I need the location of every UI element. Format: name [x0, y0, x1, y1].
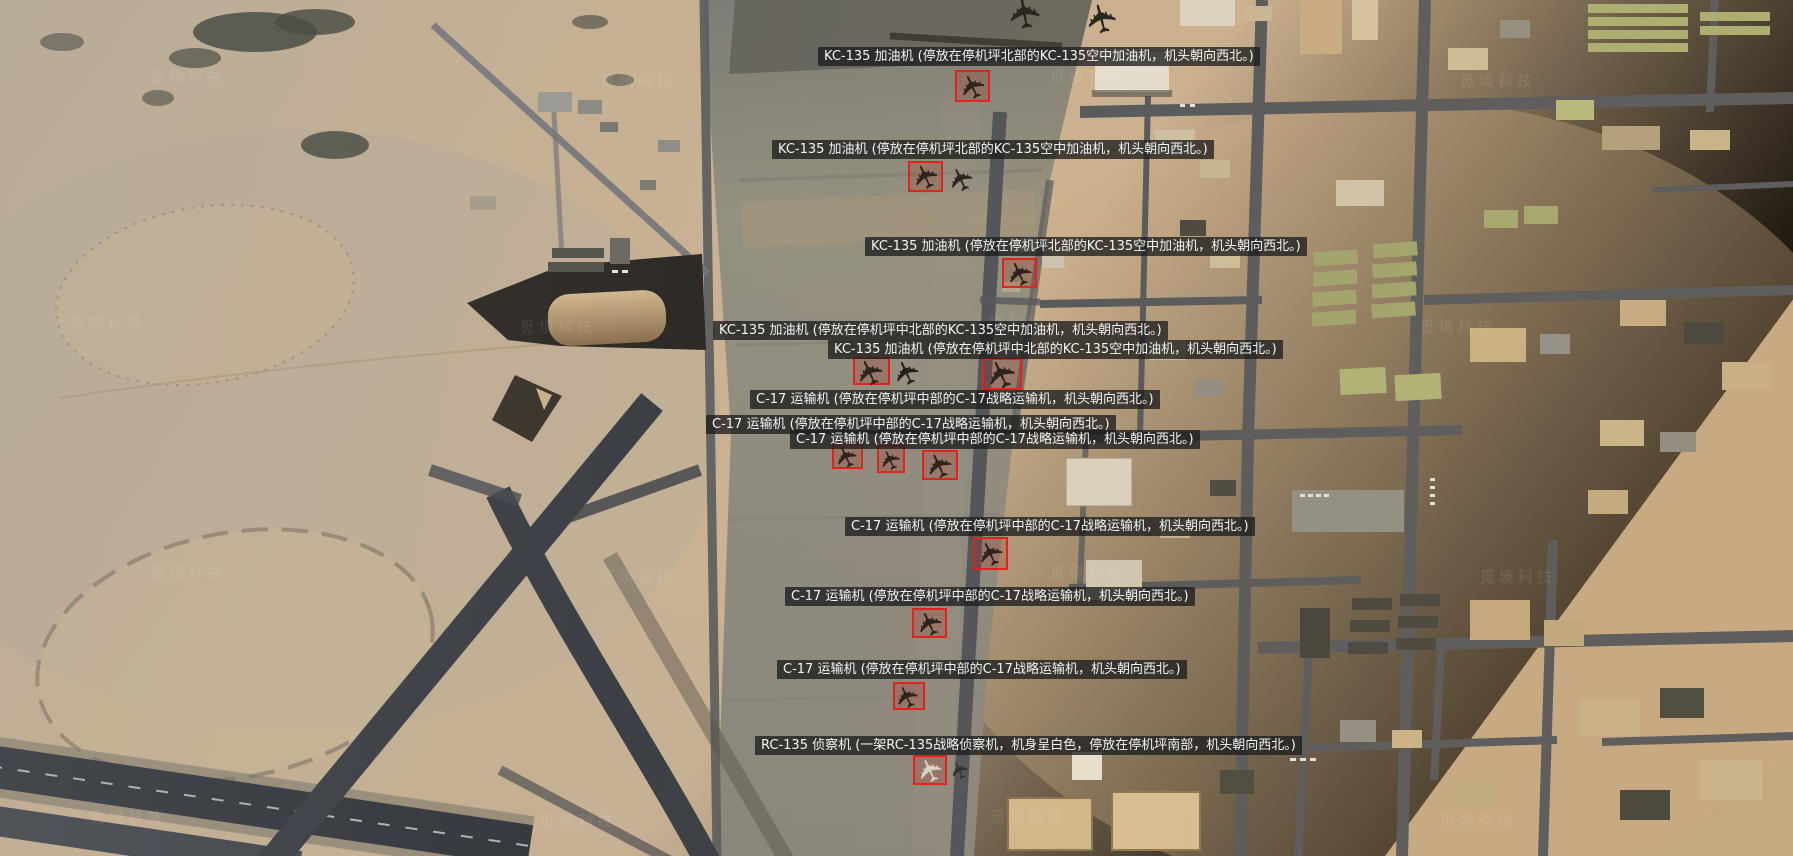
detection-box: ✈	[877, 445, 905, 473]
aircraft-icon: ✈	[999, 253, 1041, 292]
detection-box: ✈	[893, 682, 925, 710]
annotation-label: C-17 运输机 (停放在停机坪中部的C-17战略运输机，机头朝向西北。)	[845, 517, 1255, 536]
detection-box: ✈	[1002, 258, 1037, 288]
annotation-label: C-17 运输机 (停放在停机坪中部的C-17战略运输机，机头朝向西北。)	[785, 587, 1195, 606]
aircraft-icon: ✈	[919, 445, 962, 485]
watermark-text: 觅境科技	[1440, 810, 1516, 831]
watermark-text: 觅境科技	[540, 810, 616, 831]
detection-box: ✈	[955, 70, 990, 102]
watermark-text: 觅境科技	[1420, 316, 1496, 337]
aircraft-icon: ✈	[890, 678, 928, 713]
aircraft-icon: ✈	[952, 66, 994, 105]
aircraft-icon: ✈	[945, 756, 975, 784]
aircraft-icon: ✈	[909, 603, 951, 642]
detection-box: ✈	[922, 450, 958, 480]
watermark-text: 觅境科技	[1460, 70, 1536, 91]
satellite-annotation-view: 觅境科技觅境科技觅境科技觅境科技觅境科技觅境科技觅境科技觅境科技觅境科技觅境科技…	[0, 0, 1793, 856]
watermark-text: 觅境科技	[990, 806, 1066, 827]
aircraft-icon: ✈	[910, 751, 950, 789]
watermark-text: 觅境科技	[600, 70, 676, 91]
watermark-text: 觅境科技	[520, 316, 596, 337]
aircraft-icon: ✈	[970, 534, 1012, 573]
watermark-text: 觅境科技	[1050, 66, 1126, 87]
detection-box: ✈	[853, 357, 890, 385]
detection-box: ✈	[913, 755, 947, 785]
watermark-text: 觅境科技	[1050, 562, 1126, 583]
aircraft-icon: ✈	[1002, 0, 1049, 34]
detection-box: ✈	[912, 608, 947, 638]
watermark-text: 觅境科技	[90, 806, 166, 827]
annotation-label: KC-135 加油机 (停放在停机坪中北部的KC-135空中加油机，机头朝向西北…	[828, 340, 1283, 359]
annotation-label: KC-135 加油机 (停放在停机坪北部的KC-135空中加油机，机头朝向西北。…	[865, 237, 1307, 256]
watermark-text: 觅境科技	[1480, 566, 1556, 587]
annotation-label: KC-135 加油机 (停放在停机坪北部的KC-135空中加油机，机头朝向西北。…	[772, 140, 1214, 159]
aircraft-icon: ✈	[1079, 0, 1126, 39]
watermark-text: 觅境科技	[150, 562, 226, 583]
detection-box: ✈	[908, 161, 943, 192]
annotation-label: C-17 运输机 (停放在停机坪中部的C-17战略运输机，机头朝向西北。)	[790, 430, 1200, 449]
detection-box: ✈	[973, 537, 1008, 570]
annotation-label: KC-135 加油机 (停放在停机坪中北部的KC-135空中加油机，机头朝向西北…	[713, 321, 1168, 340]
annotation-label: C-17 运输机 (停放在停机坪中部的C-17战略运输机，机头朝向西北。)	[777, 660, 1187, 679]
annotation-label: KC-135 加油机 (停放在停机坪北部的KC-135空中加油机，机头朝向西北。…	[818, 47, 1260, 66]
aircraft-icon: ✈	[941, 160, 981, 198]
watermark-text: 觅境科技	[70, 312, 146, 333]
annotation-label: C-17 运输机 (停放在停机坪中部的C-17战略运输机，机头朝向西北。)	[750, 390, 1160, 409]
annotation-overlay: 觅境科技觅境科技觅境科技觅境科技觅境科技觅境科技觅境科技觅境科技觅境科技觅境科技…	[0, 0, 1793, 856]
watermark-text: 觅境科技	[600, 566, 676, 587]
detection-box: ✈	[982, 358, 1022, 390]
watermark-text: 觅境科技	[150, 66, 226, 87]
aircraft-icon: ✈	[905, 157, 947, 196]
annotation-label: RC-135 侦察机 (一架RC-135战略侦察机，机身呈白色，停放在停机坪南部…	[755, 736, 1302, 755]
